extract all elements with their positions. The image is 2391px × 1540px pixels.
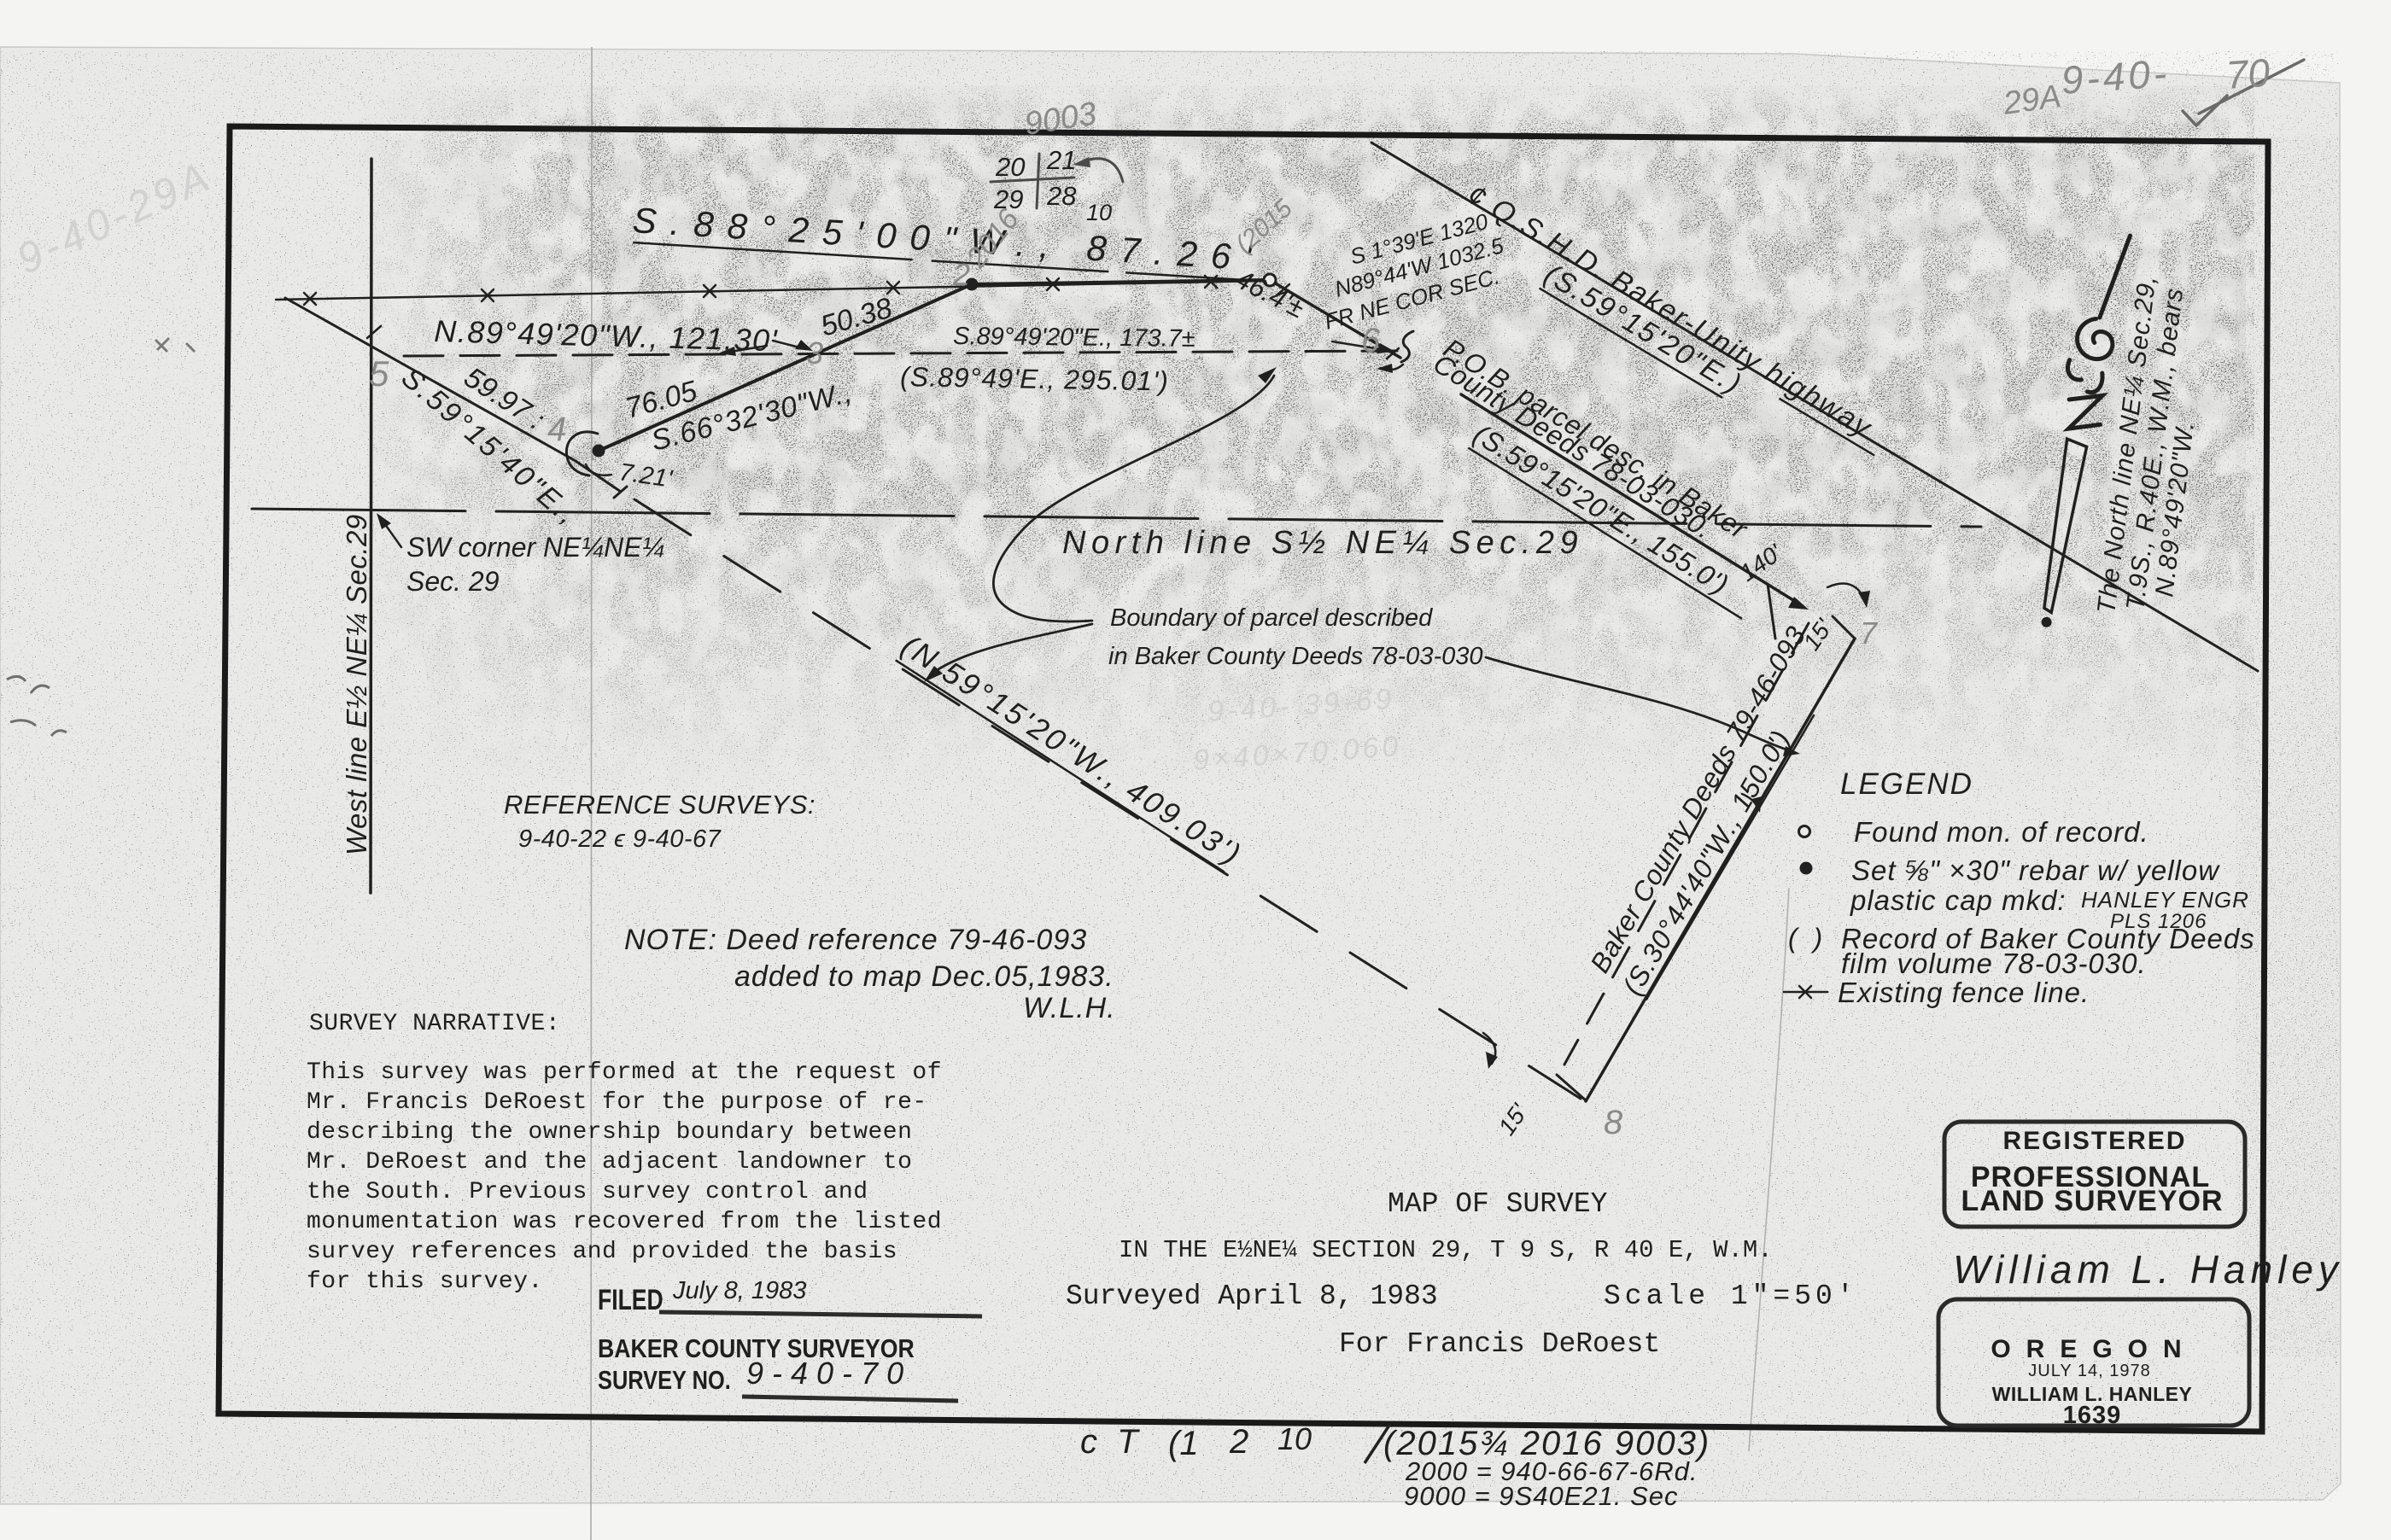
svg-text:NOTE: Deed reference 79-46-093: NOTE: Deed reference 79-46-093 [624, 924, 1087, 956]
svg-text:SURVEY NARRATIVE:: SURVEY NARRATIVE: [309, 1011, 560, 1037]
svg-text:10: 10 [1086, 200, 1112, 225]
svg-text:Existing fence line.: Existing fence line. [1838, 977, 2090, 1008]
svg-text:added to map Dec.05,1983.: added to map Dec.05,1983. [734, 960, 1114, 993]
svg-text:3: 3 [806, 335, 823, 370]
svg-text:film volume 78-03-030.: film volume 78-03-030. [1841, 948, 2147, 979]
svg-text:JULY 14, 1978: JULY 14, 1978 [2028, 1362, 2150, 1380]
svg-text:REFERENCE SURVEYS:: REFERENCE SURVEYS: [504, 790, 816, 820]
svg-text:21: 21 [1046, 145, 1076, 175]
svg-text:OREGON: OREGON [1991, 1335, 2196, 1363]
svg-text:(S.89°49'E., 295.01'): (S.89°49'E., 295.01') [900, 361, 1169, 396]
svg-text:70: 70 [2224, 50, 2271, 97]
svg-text:describing the ownership bound: describing the ownership boundary betwee… [307, 1119, 912, 1146]
svg-text:survey references and provided: survey references and provided the basis [307, 1239, 897, 1265]
svg-text:S.89°49'20"E., 173.7±: S.89°49'20"E., 173.7± [953, 323, 1195, 353]
svg-text:Found mon. of record.: Found mon. of record. [1854, 816, 2149, 848]
svg-text:North line S½ NE¼ Sec.29: North line S½ NE¼ Sec.29 [1062, 525, 1583, 561]
svg-text:Surveyed April 8, 1983: Surveyed April 8, 1983 [1066, 1280, 1438, 1312]
svg-text:REGISTERED: REGISTERED [2002, 1127, 2186, 1155]
svg-text:FILED: FILED [598, 1284, 664, 1316]
svg-text:William L. Hanley: William L. Hanley [1953, 1247, 2343, 1292]
svg-text:Mr. Francis DeRoest for the pu: Mr. Francis DeRoest for the purpose of r… [307, 1089, 927, 1116]
svg-text:Mr. DeRoest and the adjacent l: Mr. DeRoest and the adjacent landowner t… [307, 1149, 912, 1175]
svg-text:c T: c T [1080, 1423, 1143, 1461]
svg-text:9-40-70: 9-40-70 [746, 1356, 912, 1391]
svg-text:9-40-22 ϵ 9-40-67: 9-40-22 ϵ 9-40-67 [518, 825, 722, 853]
svg-text:IN THE E½NE¼ SECTION 29, T 9 S: IN THE E½NE¼ SECTION 29, T 9 S, R 40 E, … [1119, 1236, 1773, 1264]
svg-text:1639: 1639 [2063, 1402, 2122, 1429]
svg-text:plastic cap mkd:: plastic cap mkd: [1850, 884, 2067, 916]
svg-text:for this survey.: for this survey. [307, 1269, 543, 1295]
svg-text:SURVEY NO.: SURVEY NO. [598, 1366, 731, 1396]
svg-text:MAP OF SURVEY: MAP OF SURVEY [1388, 1188, 1608, 1220]
svg-text:8: 8 [1604, 1104, 1623, 1141]
svg-text:W.L.H.: W.L.H. [1023, 992, 1116, 1024]
svg-text:2: 2 [952, 257, 970, 292]
svg-text:(1: (1 [1168, 1425, 1199, 1462]
svg-text:6: 6 [1361, 322, 1381, 359]
svg-text:For Francis DeRoest: For Francis DeRoest [1339, 1328, 1660, 1360]
svg-text:28: 28 [1046, 181, 1077, 211]
svg-text:9-40-: 9-40- [2060, 50, 2172, 102]
svg-text:4: 4 [547, 411, 566, 448]
svg-text:( ): ( ) [1788, 923, 1827, 954]
svg-text:This survey was performed at t: This survey was performed at the request… [307, 1059, 942, 1086]
svg-text:Set ⅝" ×30" rebar w/ yellow: Set ⅝" ×30" rebar w/ yellow [1851, 855, 2220, 886]
svg-text:Boundary of parcel described: Boundary of parcel described [1110, 604, 1433, 632]
svg-text:monumentation was recovered fr: monumentation was recovered from the lis… [307, 1209, 942, 1235]
svg-text:in Baker County Deeds 78-03-0: in Baker County Deeds 78-03-030 [1108, 643, 1482, 670]
svg-text:20: 20 [995, 152, 1025, 182]
svg-text:July 8, 1983: July 8, 1983 [672, 1277, 806, 1304]
svg-text:HANLEY ENGR: HANLEY ENGR [2081, 887, 2249, 913]
svg-text:the South. Previous survey con: the South. Previous survey control and [307, 1179, 868, 1205]
svg-text:Scale 1"=50': Scale 1"=50' [1604, 1280, 1858, 1312]
svg-text:2: 2 [1229, 1423, 1248, 1461]
svg-text:LEGEND: LEGEND [1840, 767, 1973, 801]
svg-text:West line E½ NE¼ Sec.29: West line E½ NE¼ Sec.29 [341, 514, 372, 855]
svg-text:LAND SURVEYOR: LAND SURVEYOR [1961, 1185, 2223, 1217]
svg-text:Sec. 29: Sec. 29 [406, 566, 500, 597]
svg-text:5: 5 [369, 353, 389, 394]
svg-text:10: 10 [1277, 1421, 1312, 1456]
svg-text:7: 7 [1860, 615, 1879, 650]
svg-text:SW corner NE¼NE¼: SW corner NE¼NE¼ [406, 532, 664, 563]
svg-text:9000 = 9S40E21. Sec: 9000 = 9S40E21. Sec [1404, 1481, 1679, 1511]
